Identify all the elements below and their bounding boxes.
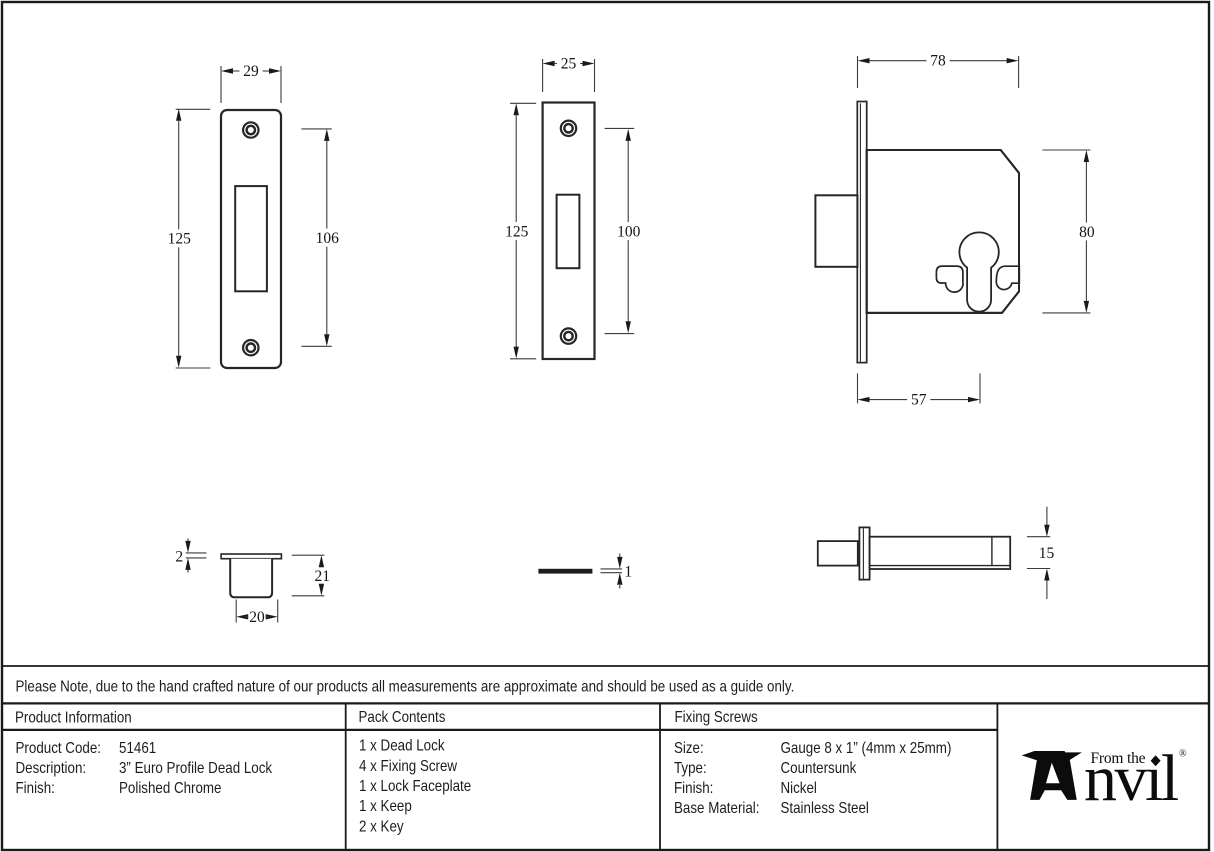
svg-text:2 x Key: 2 x Key (359, 818, 404, 835)
svg-text:1: 1 (624, 563, 632, 580)
svg-text:Please Note, due to the hand c: Please Note, due to the hand crafted nat… (16, 679, 795, 696)
svg-text:From the: From the (1091, 750, 1146, 767)
svg-text:Finish:: Finish: (16, 780, 55, 797)
svg-text:125: 125 (505, 223, 529, 240)
svg-text:Base Material:: Base Material: (674, 800, 760, 817)
svg-text:Finish:: Finish: (674, 780, 713, 797)
svg-text:15: 15 (1039, 545, 1055, 562)
svg-text:Pack Contents: Pack Contents (359, 709, 446, 726)
svg-text:®: ® (1179, 749, 1187, 760)
svg-text:2: 2 (175, 548, 183, 565)
svg-text:Description:: Description: (16, 760, 87, 777)
svg-text:80: 80 (1079, 224, 1095, 241)
svg-text:Product Information: Product Information (15, 709, 132, 726)
svg-text:Polished Chrome: Polished Chrome (119, 780, 222, 797)
svg-text:Type:: Type: (674, 760, 707, 777)
svg-text:1 x Lock Faceplate: 1 x Lock Faceplate (359, 778, 471, 795)
svg-text:1 x Dead Lock: 1 x Dead Lock (359, 737, 445, 754)
svg-text:106: 106 (316, 230, 340, 247)
svg-text:25: 25 (561, 56, 577, 73)
svg-text:51461: 51461 (119, 740, 156, 757)
svg-text:100: 100 (617, 224, 641, 241)
svg-text:1 x Keep: 1 x Keep (359, 798, 412, 815)
svg-text:Product Code:: Product Code: (16, 740, 102, 757)
svg-text:20: 20 (249, 609, 265, 626)
svg-text:3” Euro Profile Dead Lock: 3” Euro Profile Dead Lock (119, 760, 273, 777)
svg-text:57: 57 (911, 392, 927, 409)
svg-text:Nickel: Nickel (781, 780, 817, 797)
svg-text:29: 29 (243, 63, 259, 80)
svg-text:78: 78 (930, 53, 946, 70)
svg-text:125: 125 (168, 231, 192, 248)
svg-text:21: 21 (315, 568, 331, 585)
svg-text:Gauge 8 x 1” (4mm x 25mm): Gauge 8 x 1” (4mm x 25mm) (781, 740, 952, 757)
svg-text:Size:: Size: (674, 740, 704, 757)
svg-text:4 x Fixing Screw: 4 x Fixing Screw (359, 758, 457, 775)
svg-text:Countersunk: Countersunk (781, 760, 858, 777)
svg-text:Stainless Steel: Stainless Steel (781, 800, 869, 817)
svg-text:Fixing Screws: Fixing Screws (675, 709, 758, 726)
